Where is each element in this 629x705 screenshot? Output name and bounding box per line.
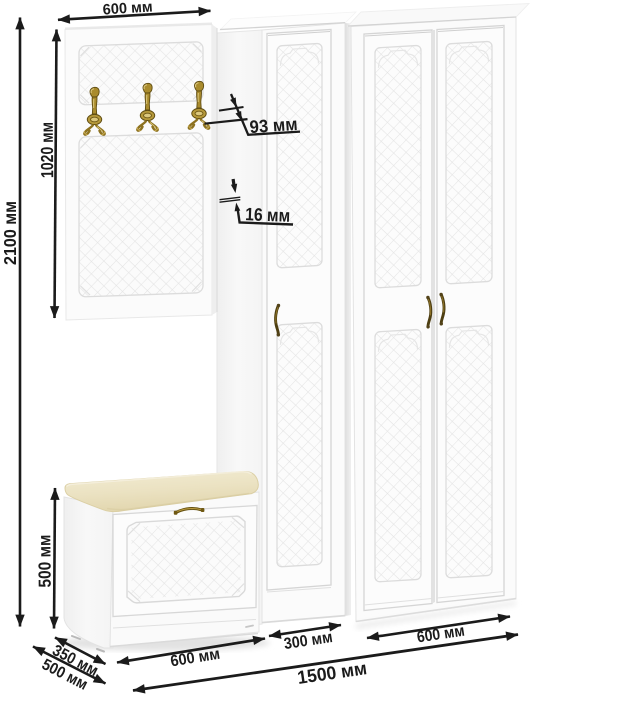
svg-text:500 мм: 500 мм (34, 534, 54, 587)
svg-text:2100 мм: 2100 мм (0, 201, 20, 265)
svg-text:16 мм: 16 мм (245, 204, 291, 226)
svg-text:600 мм: 600 мм (102, 0, 153, 19)
svg-text:93 мм: 93 мм (249, 114, 298, 137)
svg-text:1020 мм: 1020 мм (37, 122, 57, 178)
